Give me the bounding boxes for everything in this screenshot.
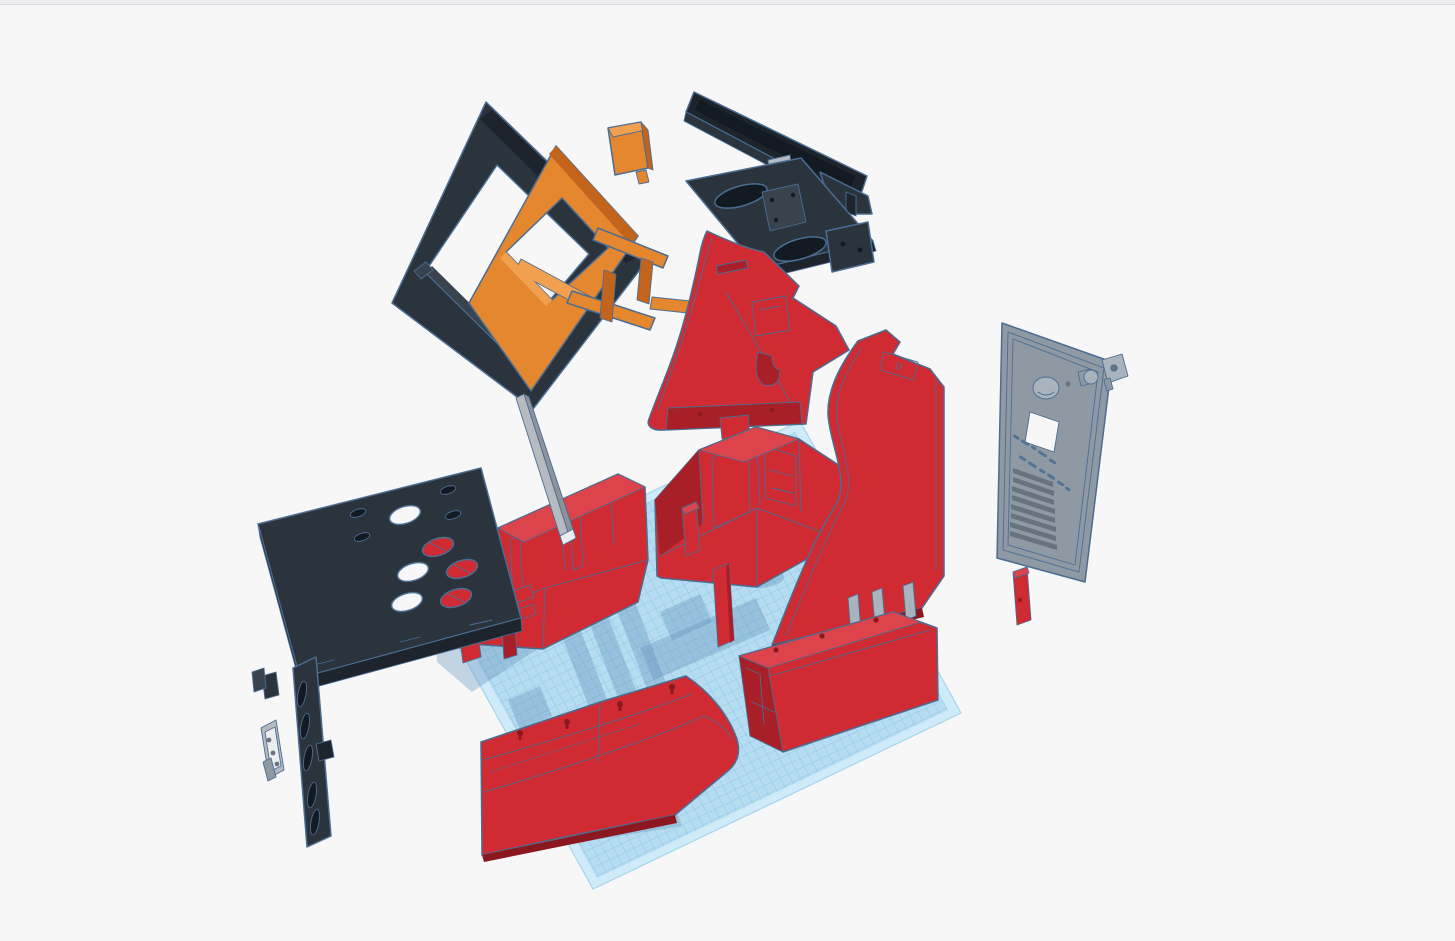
part-back-access-panel[interactable] [997, 323, 1112, 582]
back-panel-face [997, 323, 1112, 582]
back-panel-knob [1033, 377, 1059, 399]
back-panel-hole [1066, 382, 1071, 387]
screw-hole [773, 647, 778, 652]
screw-hole [858, 248, 863, 253]
part-side-vent-panel[interactable] [293, 657, 334, 847]
plate-hole [271, 751, 276, 756]
screw-hole [770, 408, 774, 412]
speaker-mount-plate [762, 184, 806, 231]
part-mount-block[interactable] [608, 122, 653, 184]
screw-hole [873, 617, 878, 622]
speaker-bracket [826, 222, 874, 272]
screw-hole [791, 193, 795, 197]
lock-barrel [1084, 370, 1098, 384]
lock-keyhole [1111, 365, 1117, 371]
screw-hole [841, 242, 846, 247]
part-mounting-plate[interactable] [261, 720, 284, 781]
mount-block-tab [636, 170, 649, 184]
screw-hole [698, 412, 702, 416]
app-window [0, 0, 1455, 941]
control-panel-foot-plate [252, 668, 266, 692]
screw-hole [774, 218, 778, 222]
plate-hole [267, 738, 272, 743]
screw-hole [770, 198, 774, 202]
3d-viewport[interactable] [0, 0, 1455, 941]
screw-hole [819, 633, 824, 638]
vent-panel-tab [316, 740, 334, 761]
red-block-hole [1018, 598, 1022, 602]
part-small-red-block[interactable] [1013, 567, 1031, 625]
plate-hole [275, 762, 280, 767]
